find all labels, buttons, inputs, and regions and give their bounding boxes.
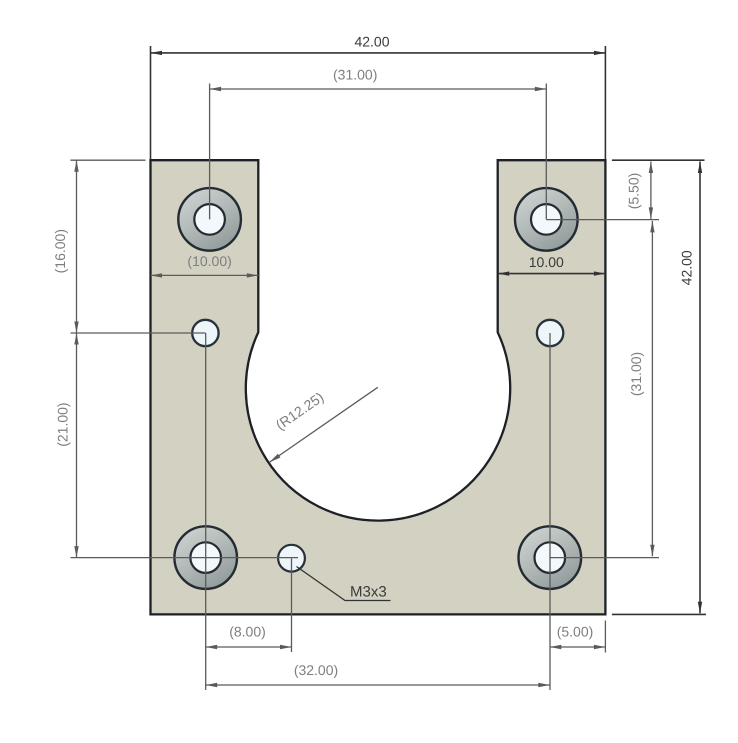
- svg-text:(21.00): (21.00): [55, 402, 71, 446]
- svg-text:10.00: 10.00: [529, 254, 564, 270]
- svg-text:(32.00): (32.00): [294, 662, 338, 678]
- svg-text:(R12.25): (R12.25): [273, 389, 327, 433]
- svg-text:M3x3: M3x3: [350, 584, 387, 601]
- svg-text:(5.00): (5.00): [557, 624, 594, 640]
- svg-text:42.00: 42.00: [679, 250, 695, 285]
- svg-text:(5.50): (5.50): [625, 173, 641, 210]
- svg-text:(31.00): (31.00): [628, 352, 644, 396]
- svg-text:(8.00): (8.00): [229, 624, 266, 640]
- svg-text:(31.00): (31.00): [333, 67, 377, 83]
- svg-text:(10.00): (10.00): [187, 253, 231, 269]
- svg-text:(16.00): (16.00): [52, 229, 68, 273]
- svg-text:42.00: 42.00: [354, 34, 389, 50]
